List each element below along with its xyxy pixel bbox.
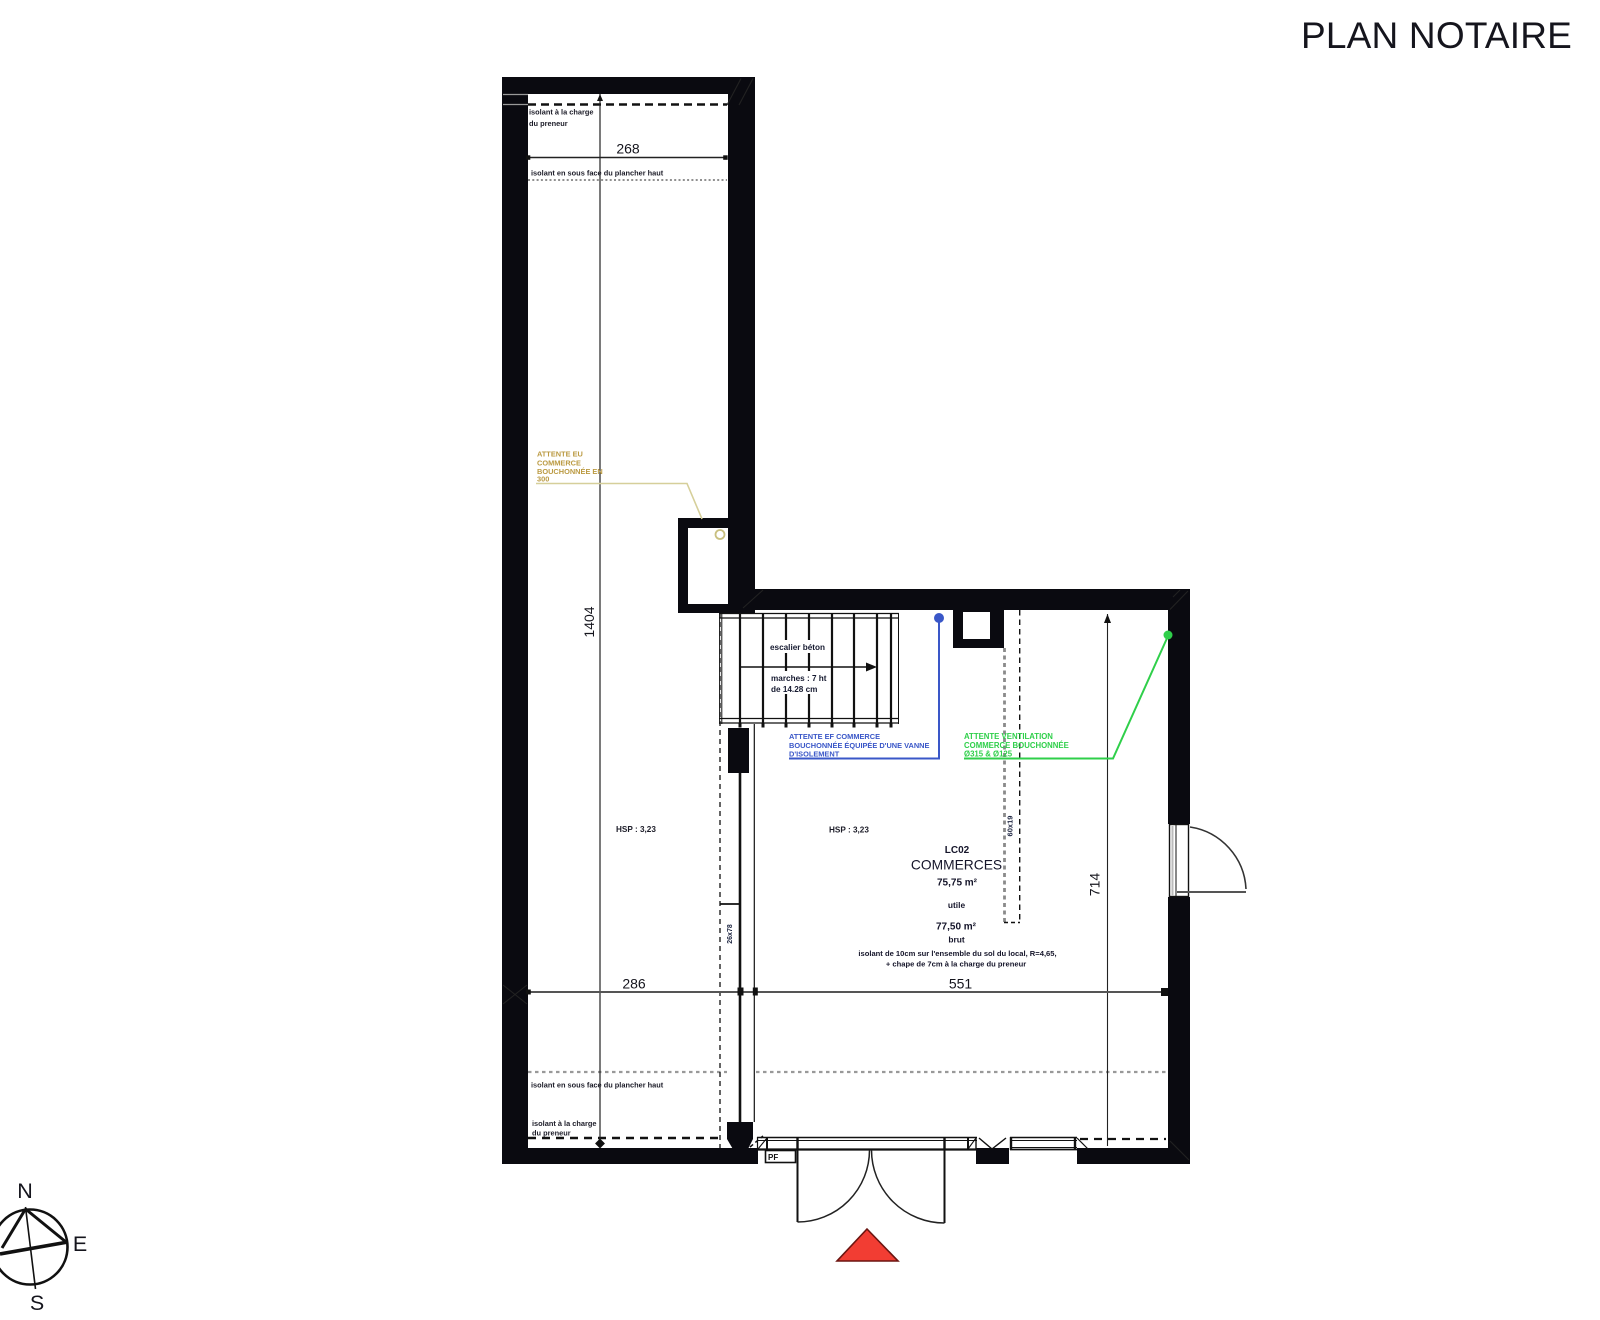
svg-text:isolant à la charge: isolant à la charge — [529, 108, 594, 117]
svg-text:ATTENTE EU: ATTENTE EU — [537, 450, 583, 459]
svg-text:utile: utile — [948, 900, 966, 910]
svg-text:Ø315 & Ø125: Ø315 & Ø125 — [964, 750, 1013, 759]
svg-text:COMMERCES: COMMERCES — [911, 858, 1002, 873]
svg-text:HSP : 3,23: HSP : 3,23 — [829, 826, 869, 835]
svg-text:77,50 m²: 77,50 m² — [936, 922, 977, 933]
svg-text:D'ISOLEMENT: D'ISOLEMENT — [789, 750, 840, 759]
svg-text:escalier béton: escalier béton — [770, 643, 825, 652]
svg-text:LC02: LC02 — [945, 845, 970, 856]
svg-text:714: 714 — [1087, 873, 1103, 897]
svg-text:isolant à la charge: isolant à la charge — [532, 1119, 597, 1128]
svg-text:ATTENTE EF COMMERCE: ATTENTE EF COMMERCE — [789, 732, 880, 741]
svg-text:isolant en sous face du planch: isolant en sous face du plancher haut — [531, 1081, 664, 1090]
svg-text:E: E — [73, 1232, 87, 1256]
svg-text:de 14.28 cm: de 14.28 cm — [771, 685, 817, 694]
svg-text:286: 286 — [622, 976, 646, 992]
svg-text:HSP : 3,23: HSP : 3,23 — [616, 825, 656, 834]
svg-text:PLAN NOTAIRE: PLAN NOTAIRE — [1301, 15, 1572, 56]
svg-text:ATTENTE VENTILATION: ATTENTE VENTILATION — [964, 732, 1053, 741]
svg-text:N: N — [17, 1179, 33, 1203]
svg-text:isolant en sous face du planch: isolant en sous face du plancher haut — [531, 169, 664, 178]
svg-text:+ chape de 7cm à la charge du: + chape de 7cm à la charge du preneur — [886, 960, 1026, 969]
svg-text:26x78: 26x78 — [727, 924, 734, 944]
svg-text:268: 268 — [616, 141, 640, 157]
svg-text:300: 300 — [537, 475, 549, 484]
svg-text:du preneur: du preneur — [529, 119, 568, 128]
svg-text:PF: PF — [768, 1153, 778, 1162]
svg-text:1404: 1404 — [581, 606, 597, 637]
svg-text:isolant de 10cm sur l'ensemble: isolant de 10cm sur l'ensemble du sol du… — [858, 949, 1056, 958]
svg-text:75,75 m²: 75,75 m² — [937, 878, 978, 889]
svg-text:marches : 7 ht: marches : 7 ht — [771, 674, 827, 683]
svg-text:S: S — [30, 1291, 44, 1315]
svg-text:du preneur: du preneur — [532, 1129, 571, 1138]
svg-text:551: 551 — [949, 976, 973, 992]
svg-text:60x19: 60x19 — [1006, 816, 1015, 837]
svg-text:brut: brut — [948, 935, 964, 945]
